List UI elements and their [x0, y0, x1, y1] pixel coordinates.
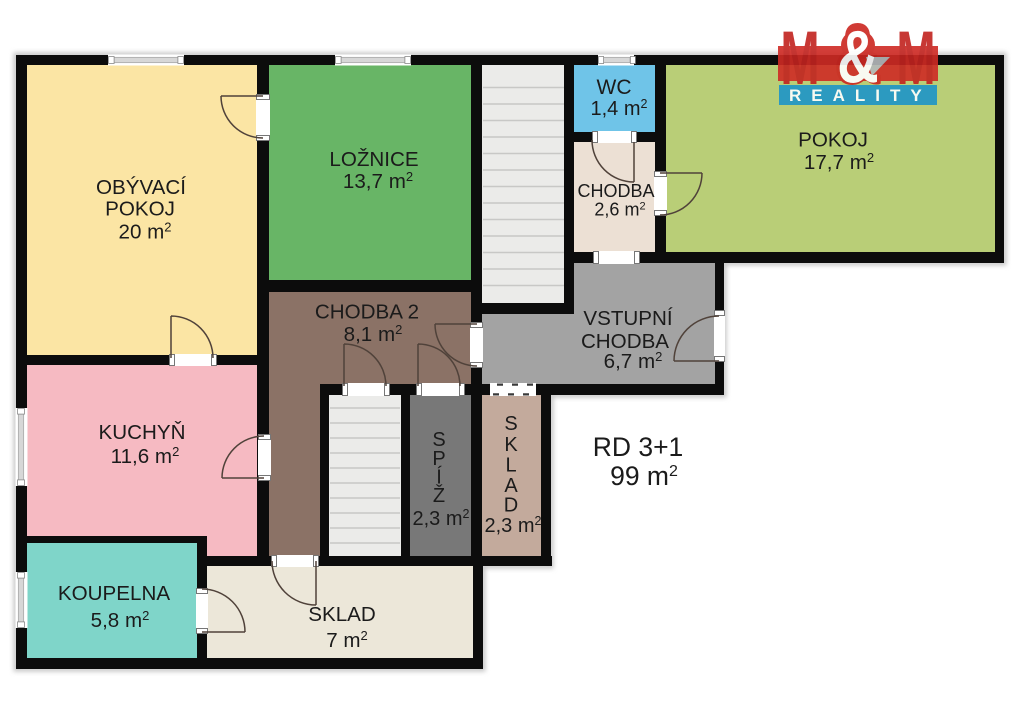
- svg-text:S: S: [504, 413, 517, 435]
- svg-text:Ž: Ž: [433, 484, 445, 507]
- svg-text:LOŽNICE: LOŽNICE: [329, 148, 418, 171]
- svg-text:L: L: [505, 455, 516, 477]
- svg-text:VSTUPNÍ: VSTUPNÍ: [583, 307, 673, 330]
- svg-text:8,1 m2: 8,1 m2: [344, 322, 403, 346]
- svg-text:13,7 m2: 13,7 m2: [343, 169, 413, 193]
- svg-text:OBÝVACÍ: OBÝVACÍ: [96, 176, 186, 199]
- svg-text:KUCHYŇ: KUCHYŇ: [99, 421, 186, 444]
- svg-text:1,4 m2: 1,4 m2: [591, 97, 648, 120]
- svg-text:2,6 m2: 2,6 m2: [594, 200, 645, 220]
- svg-text:6,7 m2: 6,7 m2: [604, 349, 663, 373]
- svg-text:11,6 m2: 11,6 m2: [111, 444, 180, 468]
- svg-text:20 m2: 20 m2: [118, 220, 171, 244]
- svg-text:2,3 m2: 2,3 m2: [413, 507, 470, 530]
- svg-text:D: D: [504, 495, 518, 517]
- svg-text:99 m2: 99 m2: [610, 461, 678, 491]
- svg-text:17,7 m2: 17,7 m2: [804, 150, 874, 174]
- svg-text:5,8 m2: 5,8 m2: [91, 608, 150, 632]
- svg-text:KOUPELNA: KOUPELNA: [58, 582, 170, 605]
- svg-text:WC: WC: [597, 76, 632, 99]
- svg-text:POKOJ: POKOJ: [798, 129, 868, 152]
- svg-text:RD 3+1: RD 3+1: [593, 432, 684, 462]
- svg-text:SKLAD: SKLAD: [308, 603, 376, 626]
- svg-text:CHODBA: CHODBA: [577, 181, 654, 201]
- svg-text:REALITY: REALITY: [789, 86, 932, 105]
- svg-text:K: K: [504, 434, 518, 456]
- svg-text:CHODBA 2: CHODBA 2: [315, 301, 419, 324]
- svg-text:POKOJ: POKOJ: [105, 198, 175, 221]
- svg-text:2,3 m2: 2,3 m2: [485, 514, 542, 537]
